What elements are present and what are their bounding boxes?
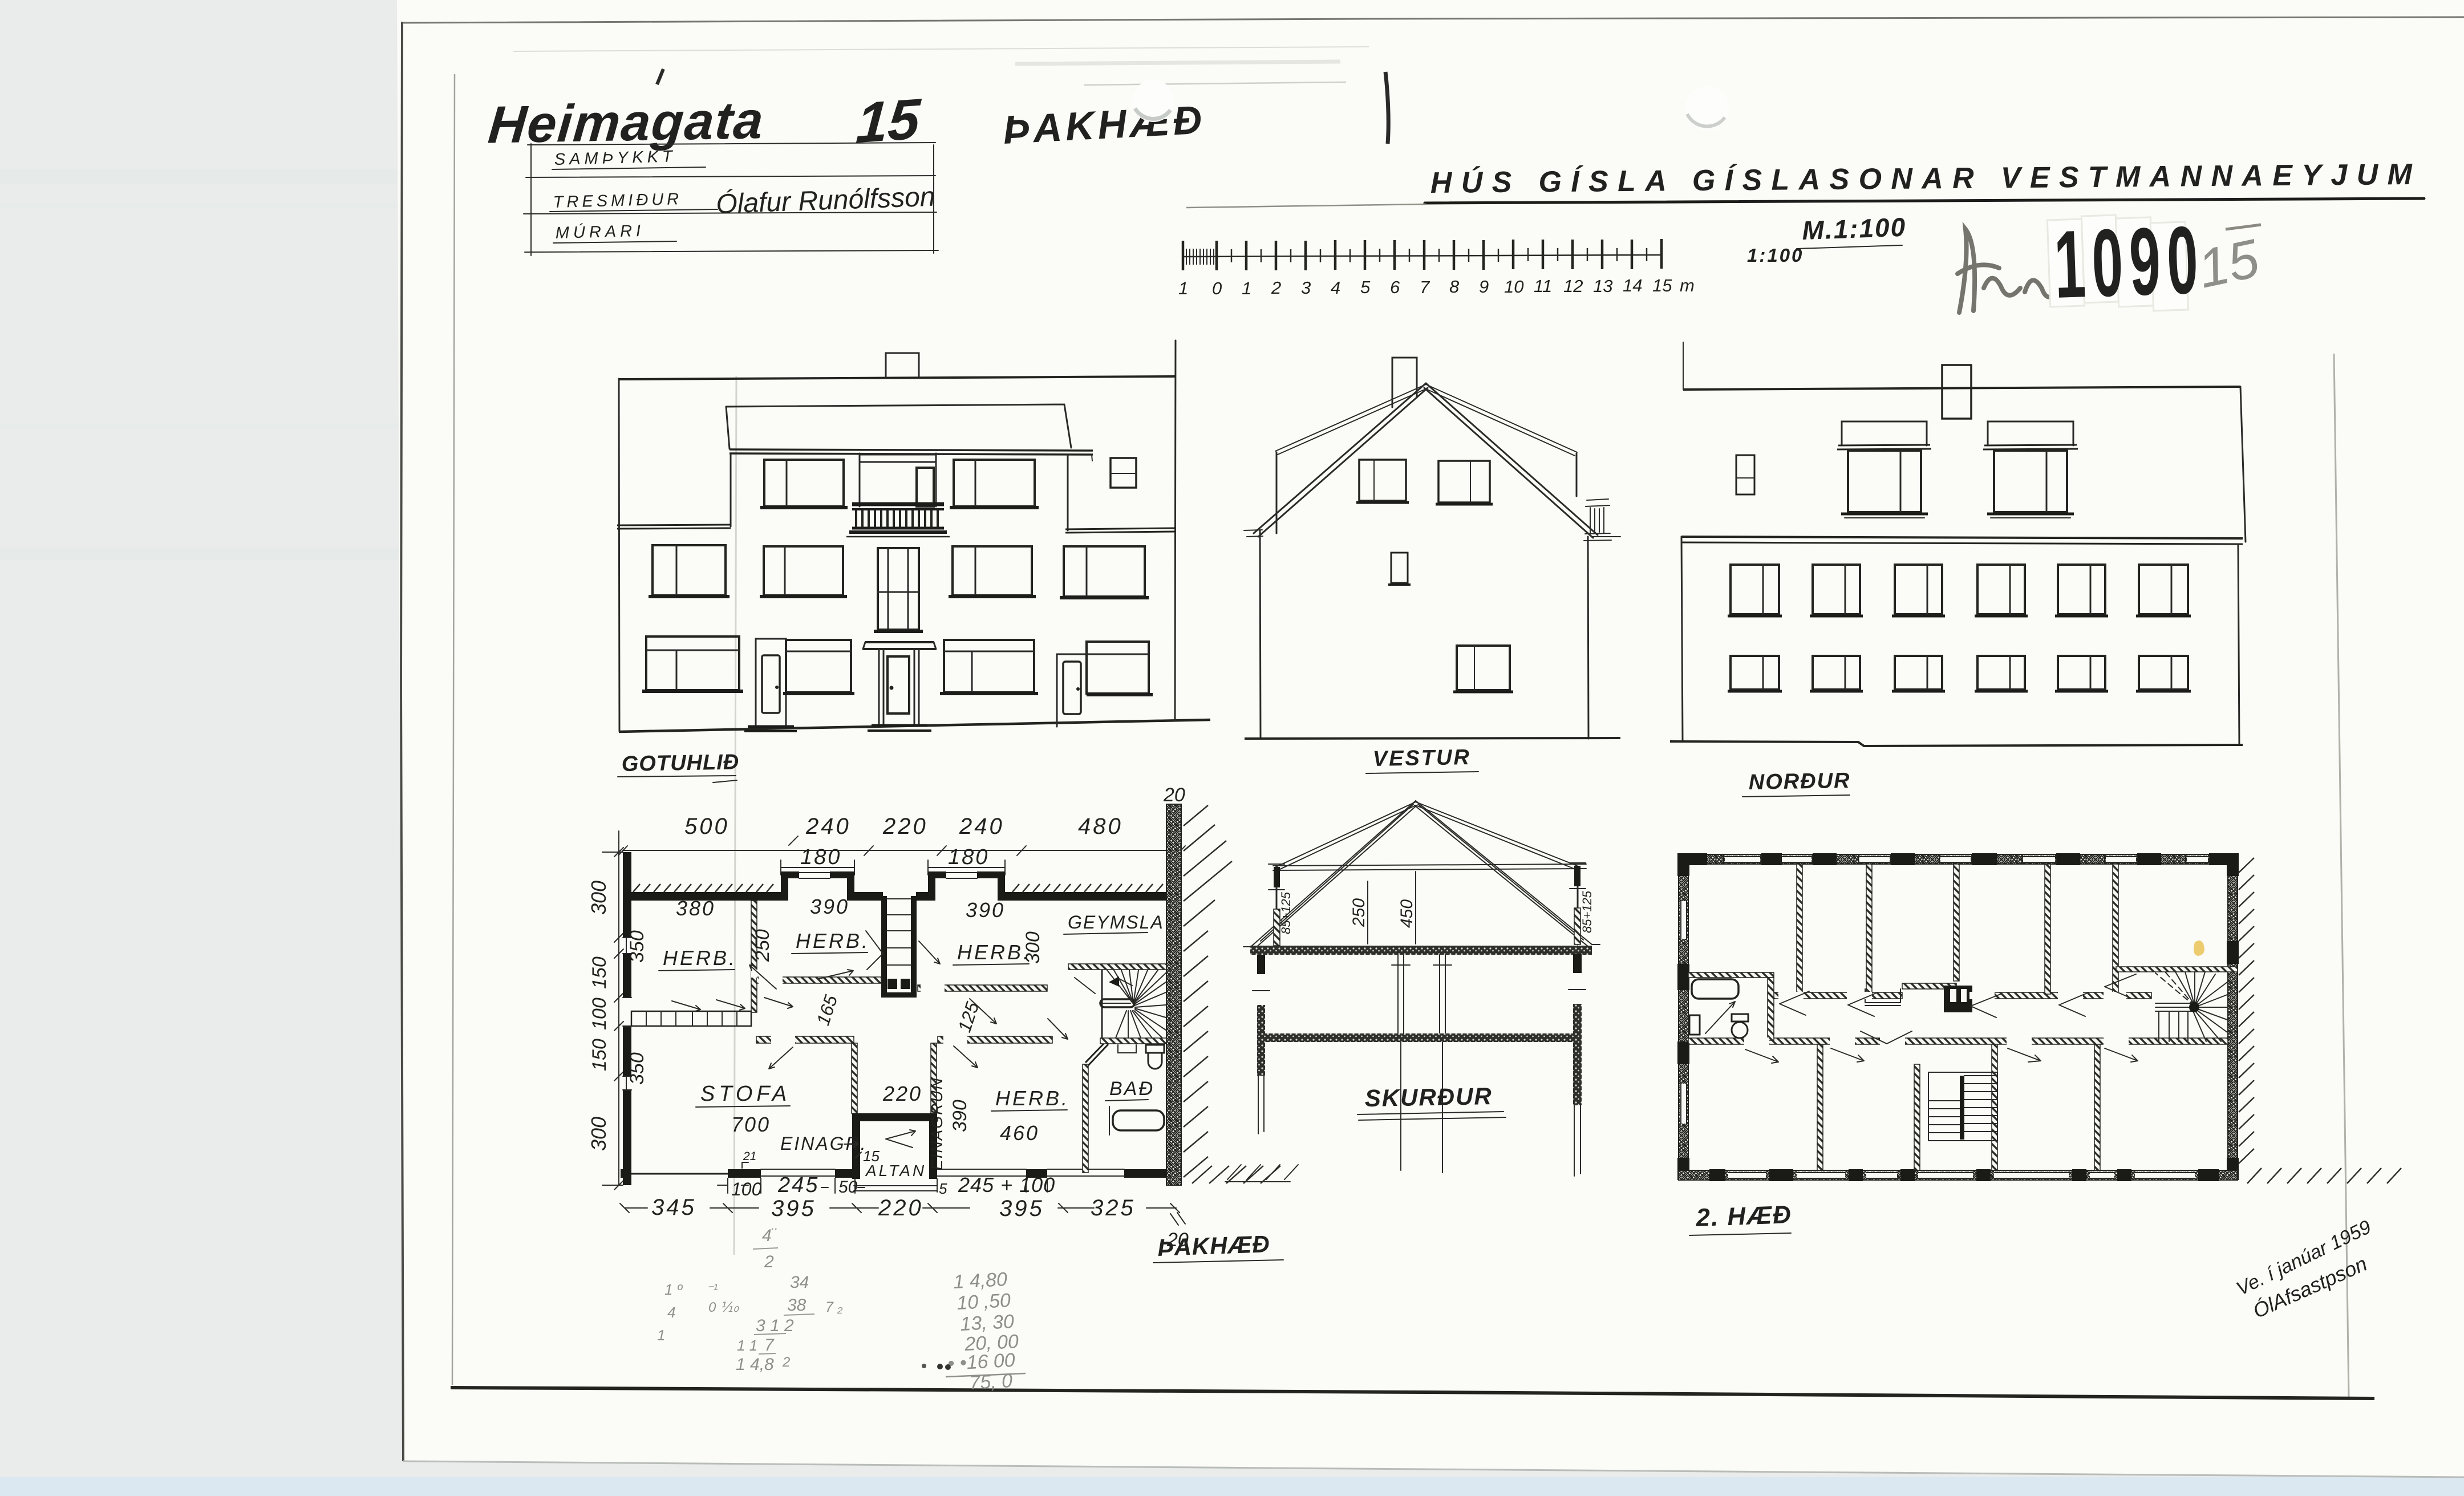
svg-text:MÚRARI: MÚRARI — [555, 221, 645, 242]
svg-text:1 º: 1 º — [664, 1281, 683, 1298]
svg-text:6: 6 — [1390, 277, 1400, 297]
svg-text:700: 700 — [731, 1113, 771, 1136]
svg-text:ÞAKHÆÐ: ÞAKHÆÐ — [1157, 1230, 1271, 1261]
svg-text:460: 460 — [1000, 1121, 1039, 1145]
svg-text:38: 38 — [787, 1296, 807, 1315]
svg-text:100: 100 — [731, 1179, 762, 1199]
svg-text:345: 345 — [651, 1195, 696, 1220]
svg-text:245: 245 — [777, 1173, 819, 1197]
svg-text:10 ,50: 10 ,50 — [956, 1290, 1011, 1314]
svg-text:BAÐ: BAÐ — [1109, 1078, 1154, 1100]
svg-text:390: 390 — [966, 898, 1005, 922]
svg-text:5: 5 — [939, 1180, 947, 1197]
svg-text:15: 15 — [854, 87, 923, 155]
svg-text:M.1:100: M.1:100 — [1802, 212, 1907, 245]
svg-text:220: 220 — [882, 1082, 922, 1105]
svg-text:20: 20 — [1163, 784, 1185, 806]
svg-text:HERB.: HERB. — [663, 946, 737, 970]
svg-text:325: 325 — [1091, 1195, 1136, 1221]
svg-text:HERB.: HERB. — [957, 940, 1031, 964]
svg-text:300: 300 — [587, 881, 610, 915]
svg-text:1090: 1090 — [2053, 206, 2207, 318]
svg-text:4: 4 — [1331, 278, 1340, 298]
svg-text:GOTUHLIÐ: GOTUHLIÐ — [621, 750, 739, 776]
svg-text:240: 240 — [805, 814, 851, 839]
svg-text:SAMÞYKKT: SAMÞYKKT — [554, 147, 676, 169]
svg-text:0: 0 — [1212, 278, 1222, 298]
svg-text:2: 2 — [764, 1252, 774, 1271]
svg-text:220: 220 — [882, 814, 928, 839]
svg-text:7: 7 — [764, 1336, 775, 1355]
svg-text:7: 7 — [1420, 277, 1430, 297]
svg-text:4: 4 — [667, 1304, 675, 1321]
svg-text:7 ₂: 7 ₂ — [825, 1299, 843, 1315]
svg-text:14: 14 — [1623, 275, 1642, 295]
svg-text:300: 300 — [587, 1117, 610, 1151]
svg-text:150: 150 — [589, 956, 610, 989]
svg-text:1 4,8: 1 4,8 — [736, 1355, 774, 1374]
svg-text:HERB.: HERB. — [995, 1086, 1069, 1110]
svg-text:4: 4 — [762, 1226, 772, 1245]
svg-text:300: 300 — [1022, 931, 1044, 964]
svg-text:..: .. — [771, 1218, 778, 1233]
svg-text:11: 11 — [1534, 276, 1552, 296]
svg-text:1:100: 1:100 — [1747, 245, 1804, 266]
svg-text:390: 390 — [949, 1100, 971, 1132]
svg-text:1 1: 1 1 — [737, 1337, 757, 1354]
svg-text:380: 380 — [676, 897, 715, 920]
svg-text:150: 150 — [589, 1039, 610, 1071]
svg-text:TRESMIÐUR: TRESMIÐUR — [553, 190, 682, 212]
svg-text:2: 2 — [1271, 278, 1281, 298]
svg-text:85+125: 85+125 — [1580, 890, 1594, 933]
svg-text:34: 34 — [790, 1273, 809, 1292]
svg-text:480: 480 — [1078, 814, 1123, 839]
svg-text:250: 250 — [1349, 898, 1368, 927]
svg-text:180: 180 — [800, 845, 841, 869]
svg-text:VESTUR: VESTUR — [1372, 745, 1471, 771]
svg-text:220: 220 — [878, 1195, 923, 1221]
svg-text:12: 12 — [1563, 276, 1583, 296]
svg-text:250: 250 — [752, 929, 773, 962]
svg-text:245 + 100: 245 + 100 — [958, 1173, 1055, 1197]
svg-text:EINAGRUN: EINAGRUN — [928, 1077, 946, 1170]
svg-text:1: 1 — [1242, 278, 1251, 298]
svg-text:390: 390 — [810, 895, 849, 918]
svg-text:180: 180 — [948, 845, 989, 869]
svg-text:5: 5 — [1360, 277, 1371, 297]
svg-text:8: 8 — [1449, 277, 1460, 297]
svg-text:15: 15 — [863, 1148, 880, 1165]
svg-text:395: 395 — [999, 1196, 1044, 1221]
svg-text:m: m — [1680, 275, 1695, 295]
svg-text:10: 10 — [1504, 277, 1523, 297]
svg-text:SKURÐUR: SKURÐUR — [1364, 1083, 1493, 1112]
svg-text:9: 9 — [1479, 277, 1489, 297]
svg-text:350: 350 — [626, 930, 648, 963]
svg-text:HERB.: HERB. — [796, 929, 870, 952]
svg-text:NORÐUR: NORÐUR — [1748, 769, 1850, 794]
svg-text:2. HÆÐ: 2. HÆÐ — [1695, 1201, 1793, 1232]
svg-text:500: 500 — [684, 814, 730, 839]
svg-text:50: 50 — [838, 1178, 858, 1197]
svg-text:STOFA: STOFA — [700, 1082, 791, 1106]
svg-text:3 1 2: 3 1 2 — [756, 1316, 794, 1335]
svg-text:0 ⅒: 0 ⅒ — [708, 1300, 739, 1315]
svg-text:⁻¹: ⁻¹ — [706, 1282, 718, 1297]
svg-text:85+125: 85+125 — [1279, 891, 1293, 934]
svg-text:1: 1 — [1178, 278, 1188, 298]
svg-text:100: 100 — [589, 998, 610, 1030]
svg-text:3: 3 — [1301, 278, 1311, 298]
svg-text:350: 350 — [626, 1052, 648, 1085]
svg-text:450: 450 — [1397, 899, 1416, 928]
svg-text:15: 15 — [1652, 275, 1672, 295]
svg-text:GEYMSLA: GEYMSLA — [1068, 912, 1164, 933]
svg-text:21: 21 — [743, 1150, 756, 1163]
svg-text:1: 1 — [657, 1327, 665, 1344]
svg-text:13: 13 — [1593, 276, 1612, 296]
svg-text:240: 240 — [959, 814, 1004, 839]
svg-text:1 4,80: 1 4,80 — [953, 1268, 1007, 1293]
svg-text:395: 395 — [771, 1196, 816, 1221]
svg-text:2: 2 — [782, 1355, 790, 1370]
